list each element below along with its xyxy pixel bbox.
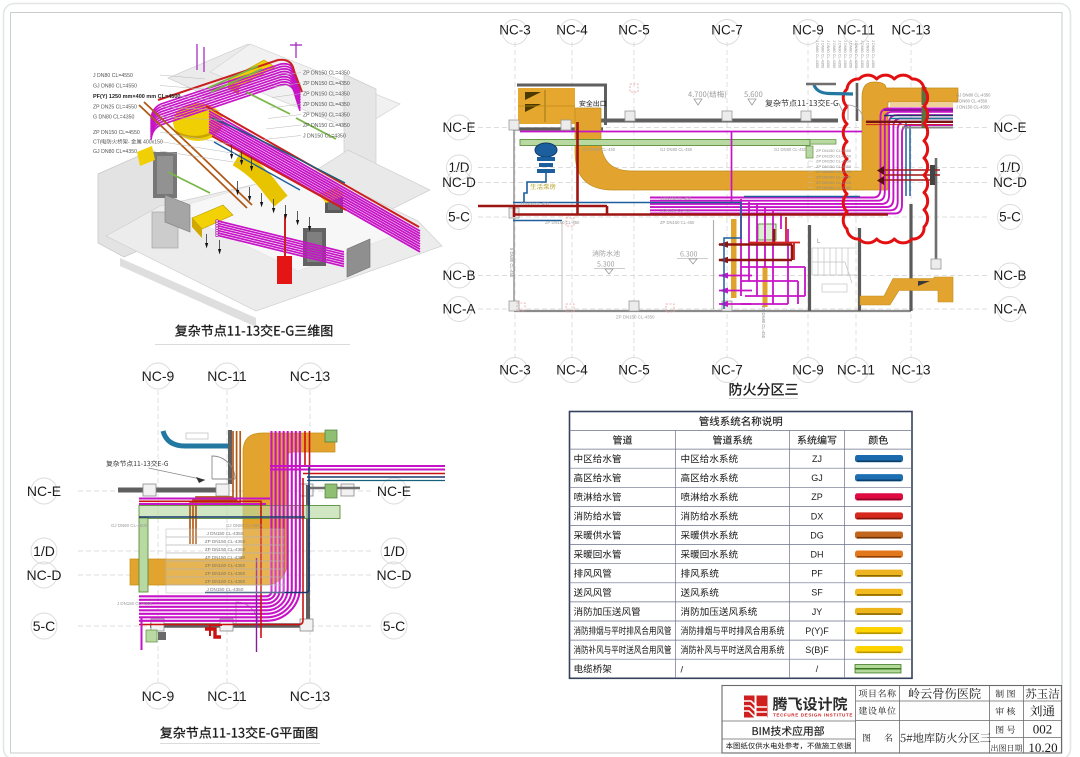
- svg-text:NC-7: NC-7: [711, 363, 743, 378]
- svg-text:DX: DX: [811, 511, 824, 521]
- svg-text:GJ: GJ: [811, 473, 823, 483]
- svg-text:10.20: 10.20: [1028, 740, 1057, 755]
- svg-text:1/D: 1/D: [383, 543, 405, 559]
- svg-text:NC-D: NC-D: [993, 175, 1027, 190]
- svg-text:NC-E: NC-E: [27, 483, 61, 499]
- svg-text:J DN150 CL-4350: J DN150 CL-4350: [956, 105, 990, 110]
- svg-text:GJ DN80 CL-450: GJ DN80 CL-450: [774, 147, 807, 152]
- svg-text:ZP DN150 CL-450: ZP DN150 CL-450: [545, 220, 580, 225]
- svg-text:JY: JY: [812, 607, 823, 617]
- svg-text:G DN80 CL=4350: G DN80 CL=4350: [93, 115, 134, 121]
- svg-text:J DN150 CL-4350: J DN150 CL-4350: [207, 531, 244, 536]
- svg-text:NC-13: NC-13: [290, 368, 331, 384]
- svg-text:400x150: 400x150: [143, 140, 163, 146]
- svg-text:ZP DN150 CL-4350: ZP DN150 CL-4350: [205, 579, 246, 584]
- svg-text:GJ DN80 CL-4600: GJ DN80 CL-4600: [111, 523, 148, 528]
- svg-text:GJ DN80 CL-450: GJ DN80 CL-450: [660, 147, 693, 152]
- svg-text:J DN80 CL-4350: J DN80 CL-4350: [815, 40, 819, 68]
- svg-text:NC-11: NC-11: [207, 368, 247, 384]
- svg-text:ZJ: ZJ: [812, 454, 822, 464]
- svg-text:NC-13: NC-13: [891, 363, 930, 378]
- svg-text:J DN80 CL-4350: J DN80 CL-4350: [843, 40, 847, 68]
- svg-text:ZP DN150 CL-4350: ZP DN150 CL-4350: [205, 547, 246, 552]
- svg-text:J DN80 CL-4350: J DN80 CL-4350: [821, 40, 825, 68]
- svg-text:J DN150 CL-4350: J DN150 CL-4350: [207, 587, 244, 592]
- svg-text:ZP DN150 CL=4350: ZP DN150 CL=4350: [303, 81, 350, 87]
- svg-text:NC-11: NC-11: [837, 23, 875, 38]
- svg-text:NC-9: NC-9: [142, 368, 175, 384]
- svg-text:NC-11: NC-11: [207, 688, 247, 704]
- svg-text:ZP DN150 CL-4350: ZP DN150 CL-4350: [816, 185, 852, 190]
- svg-text:5-C: 5-C: [999, 210, 1021, 225]
- svg-text:ZP DN150 CL=4350: ZP DN150 CL=4350: [303, 123, 350, 129]
- svg-text:J DN150 CL-450: J DN150 CL-450: [660, 208, 692, 213]
- svg-text:NC-7: NC-7: [711, 23, 743, 38]
- svg-text:J DN80 CL-4350: J DN80 CL-4350: [860, 40, 864, 68]
- svg-text:S(B)F: S(B)F: [805, 645, 829, 655]
- svg-text:NC-D: NC-D: [377, 567, 412, 583]
- svg-text:J DN80 CL-4350: J DN80 CL-4350: [956, 99, 988, 104]
- svg-text:DG: DG: [810, 530, 824, 540]
- svg-text:NC-B: NC-B: [443, 268, 476, 283]
- svg-text:ZP DN150 CL=4350: ZP DN150 CL=4350: [303, 102, 350, 108]
- svg-text:NC-13: NC-13: [290, 688, 331, 704]
- svg-text:NC-E: NC-E: [377, 483, 411, 499]
- svg-text:NC-11: NC-11: [837, 363, 875, 378]
- svg-text:GJ DN80 CL=4350: GJ DN80 CL=4350: [93, 149, 137, 155]
- svg-text:J DN150 CL=4350: J DN150 CL=4350: [303, 134, 346, 140]
- svg-text:ZP DN150 CL=4350: ZP DN150 CL=4350: [303, 71, 350, 77]
- svg-text:ZP DN150 CL-4350: ZP DN150 CL-4350: [816, 169, 852, 174]
- svg-text:J DN150 CL-450: J DN150 CL-450: [660, 196, 692, 201]
- svg-text:J DN80 CL-4350: J DN80 CL-4350: [871, 40, 875, 68]
- svg-text:ZP DN150 CL=4350: ZP DN150 CL=4350: [303, 113, 350, 119]
- svg-text:5-C: 5-C: [448, 210, 470, 225]
- svg-text:NC-D: NC-D: [442, 175, 476, 190]
- svg-text:J DN150 CL-4350: J DN150 CL-4350: [117, 601, 153, 606]
- svg-text:SF: SF: [811, 588, 823, 598]
- svg-text:ZP DN150 CL-4350: ZP DN150 CL-4350: [816, 164, 852, 169]
- svg-text:ZP DN150 CL-4350: ZP DN150 CL-4350: [816, 159, 852, 164]
- svg-text:ZP: ZP: [811, 492, 823, 502]
- svg-text:J DN80 CL-4350: J DN80 CL-4350: [849, 40, 853, 68]
- svg-text:NC-A: NC-A: [443, 302, 476, 317]
- svg-text:5-C: 5-C: [383, 618, 406, 634]
- svg-text:5 DN80 CL-450: 5 DN80 CL-450: [509, 248, 514, 278]
- svg-text:GJ DN80 CL-4600: GJ DN80 CL-4600: [226, 523, 263, 528]
- svg-text:GJ DN80 CL-4350: GJ DN80 CL-4350: [956, 93, 991, 98]
- svg-text:NC-D: NC-D: [27, 567, 62, 583]
- svg-text:-: -: [128, 140, 130, 146]
- svg-text:J DN80 CL-4350: J DN80 CL-4350: [854, 40, 858, 68]
- svg-text:J DN80 CL-4350: J DN80 CL-4350: [837, 40, 841, 68]
- svg-text:GJ DN80 CL=4550: GJ DN80 CL=4550: [93, 84, 137, 90]
- svg-text:CT(: CT(: [93, 140, 102, 146]
- svg-text:PF(Y) 1250 mm×400 mm CL=4500: PF(Y) 1250 mm×400 mm CL=4500: [93, 94, 180, 100]
- svg-text:ZP DN150 CL-4350: ZP DN150 CL-4350: [616, 315, 655, 320]
- svg-text:NC-A: NC-A: [994, 302, 1027, 317]
- svg-text:J DN50 CL-450: J DN50 CL-450: [520, 201, 550, 206]
- svg-text:NC-9: NC-9: [792, 23, 824, 38]
- svg-text:J DN80 CL-4350: J DN80 CL-4350: [832, 40, 836, 68]
- svg-text:ZP DN150 CL=4350: ZP DN150 CL=4350: [303, 92, 350, 98]
- svg-text:J DN80 CL-4350: J DN80 CL-4350: [826, 40, 830, 68]
- svg-text:NC-9: NC-9: [792, 363, 824, 378]
- svg-text:002: 002: [1033, 722, 1053, 737]
- svg-text:NC-4: NC-4: [556, 23, 588, 38]
- svg-text:ZP DN150 CL=4550: ZP DN150 CL=4550: [93, 130, 140, 136]
- svg-text:NC-9: NC-9: [142, 688, 175, 704]
- svg-text:NC-E: NC-E: [443, 120, 476, 135]
- svg-text:1/D: 1/D: [33, 543, 55, 559]
- svg-text:DH: DH: [811, 549, 824, 559]
- svg-text:ZP DN150 CL-450: ZP DN150 CL-450: [660, 220, 695, 225]
- svg-text:ZP DN80 CL-450: ZP DN80 CL-450: [761, 306, 766, 339]
- svg-text:/: /: [681, 664, 684, 675]
- svg-text:GJ DN80 CL-450: GJ DN80 CL-450: [583, 147, 616, 152]
- svg-text:ZP DN150 CL-4350: ZP DN150 CL-4350: [816, 180, 852, 185]
- svg-text:ZP DN150 CL-4350: ZP DN150 CL-4350: [205, 563, 246, 568]
- svg-text:P(Y)F: P(Y)F: [805, 626, 829, 636]
- svg-text:NC-B: NC-B: [994, 268, 1027, 283]
- svg-text:TECFURE DESIGN INSTITUTE: TECFURE DESIGN INSTITUTE: [773, 713, 853, 718]
- svg-text:NC-5: NC-5: [618, 23, 650, 38]
- svg-text:NC-4: NC-4: [556, 363, 588, 378]
- svg-text:ZP DN150 CL-4350: ZP DN150 CL-4350: [205, 571, 246, 576]
- svg-text:ZP DN150 CL-4350: ZP DN150 CL-4350: [816, 148, 852, 153]
- svg-text:NC-E: NC-E: [994, 120, 1027, 135]
- svg-text:J DN80 CL-4350: J DN80 CL-4350: [865, 40, 869, 68]
- svg-text:NC-13: NC-13: [891, 23, 930, 38]
- svg-text:ZP DN150 CL-4350: ZP DN150 CL-4350: [205, 539, 246, 544]
- svg-text:4P DN150 CL-4350: 4P DN150 CL-4350: [205, 555, 245, 560]
- svg-text:5-C: 5-C: [33, 618, 56, 634]
- svg-text:NC-5: NC-5: [618, 363, 650, 378]
- svg-text:J DN80 CL=4550: J DN80 CL=4550: [93, 73, 133, 79]
- svg-text:ZP DN150 CL-4350: ZP DN150 CL-4350: [816, 153, 852, 158]
- svg-text:ZP DN150 CL-4350: ZP DN150 CL-4350: [816, 175, 852, 180]
- svg-text:NC-3: NC-3: [499, 23, 531, 38]
- svg-text:PF: PF: [811, 569, 823, 579]
- svg-text:ZP DN25 CL=4550: ZP DN25 CL=4550: [93, 105, 137, 111]
- svg-text:NC-3: NC-3: [499, 363, 531, 378]
